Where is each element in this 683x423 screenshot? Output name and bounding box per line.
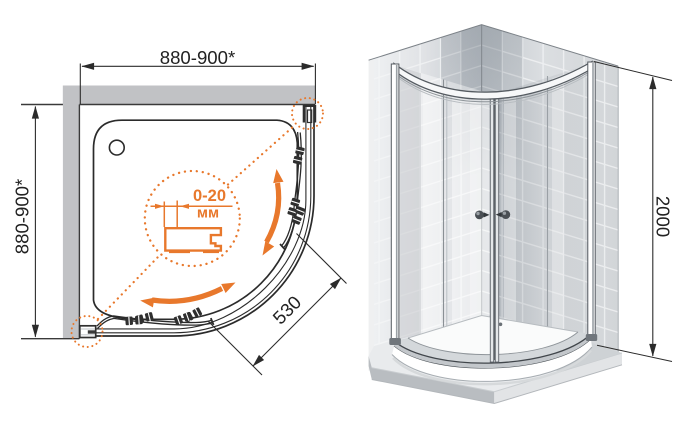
svg-text:880-900*: 880-900* bbox=[12, 179, 33, 254]
svg-text:530: 530 bbox=[269, 292, 306, 329]
svg-text:0-20: 0-20 bbox=[193, 187, 226, 205]
svg-text:880-900*: 880-900* bbox=[160, 47, 235, 68]
svg-text:2000: 2000 bbox=[653, 196, 674, 237]
